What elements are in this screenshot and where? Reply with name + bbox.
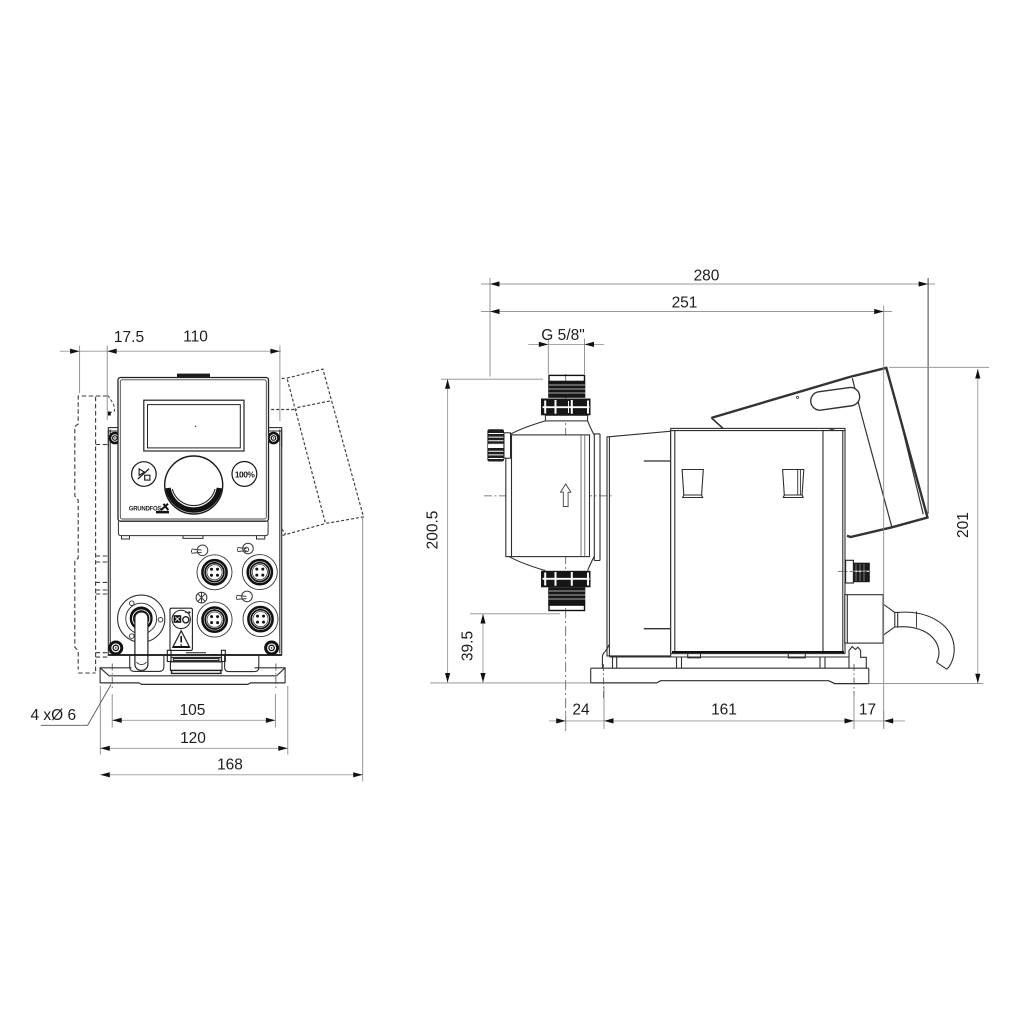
svg-text:G 5/8": G 5/8" — [541, 327, 584, 344]
svg-text:17: 17 — [859, 702, 876, 719]
svg-text:39.5: 39.5 — [460, 631, 477, 661]
svg-text:161: 161 — [711, 702, 737, 719]
svg-text:105: 105 — [180, 702, 206, 719]
svg-text:100%: 100% — [235, 469, 255, 479]
svg-text:251: 251 — [672, 295, 698, 312]
svg-text:4 xØ 6: 4 xØ 6 — [31, 707, 77, 724]
svg-text:200.5: 200.5 — [425, 511, 442, 550]
svg-text:201: 201 — [955, 512, 972, 538]
svg-text:120: 120 — [180, 730, 206, 747]
svg-text:168: 168 — [217, 757, 243, 774]
svg-text:110: 110 — [183, 329, 208, 346]
svg-text:17.5: 17.5 — [114, 329, 144, 346]
svg-text:280: 280 — [694, 268, 720, 285]
svg-text:24: 24 — [572, 702, 590, 719]
